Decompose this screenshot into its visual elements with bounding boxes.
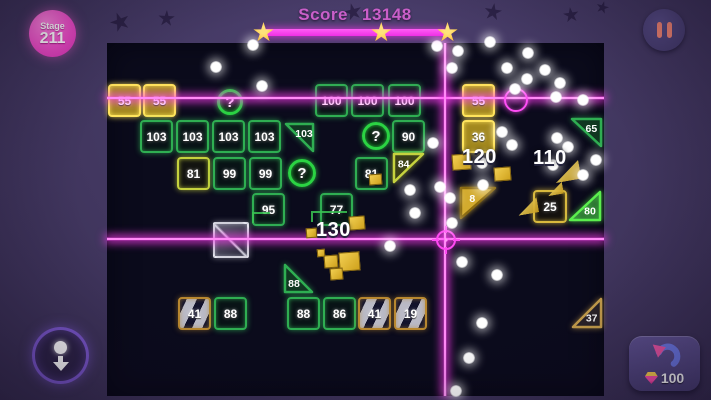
background-star: [483, 2, 504, 23]
score-label: Score: [298, 5, 348, 24]
stage-label: Stage: [40, 21, 65, 31]
background-star: [158, 10, 176, 28]
score-progress-bar: [263, 29, 447, 36]
undo-button[interactable]: 100: [629, 336, 700, 391]
pause-button[interactable]: [643, 9, 685, 51]
undo-arrow-icon: [647, 341, 683, 369]
game-screen: Stage 211 Score13148 555510010010055?103…: [0, 0, 711, 400]
undo-cost: 100: [645, 370, 684, 386]
score-value: 13148: [362, 5, 412, 24]
gem-icon: [645, 372, 658, 384]
progress-star-icon: [437, 22, 458, 43]
stage-number: 211: [40, 31, 66, 47]
background-star: [595, 0, 611, 15]
background-star: [562, 6, 580, 24]
background-star: [107, 9, 133, 35]
progress-star-icon: [253, 22, 274, 43]
score-display: Score13148: [245, 5, 465, 25]
stage-badge: Stage 211: [29, 10, 76, 57]
undo-cost-value: 100: [661, 370, 684, 386]
ball-down-icon: [53, 341, 69, 371]
game-board[interactable]: [107, 43, 604, 396]
progress-star-icon: [371, 22, 392, 43]
pause-icon: [657, 22, 672, 38]
pull-balls-down-button[interactable]: [32, 327, 89, 384]
